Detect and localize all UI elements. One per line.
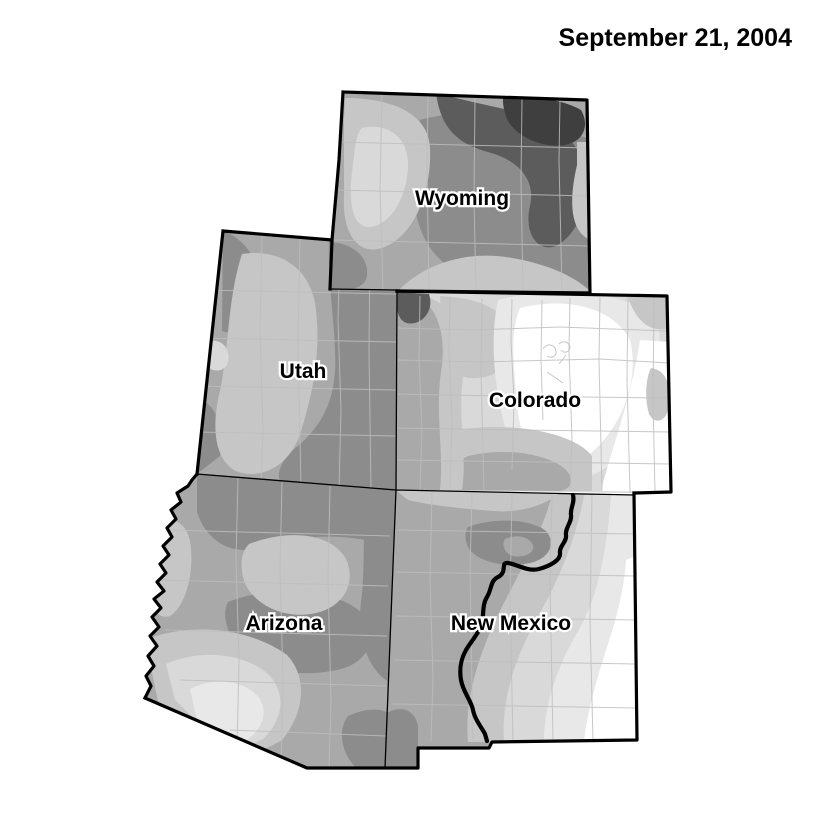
map-canvas: September 21, 2004 Wyoming Utah Colorado…: [0, 0, 816, 816]
map-figure: September 21, 2004 Wyoming Utah Colorado…: [0, 0, 816, 816]
state-label-arizona: Arizona: [245, 612, 322, 635]
state-label-colorado: Colorado: [489, 389, 581, 412]
state-label-wyoming: Wyoming: [415, 187, 509, 210]
map-date-title: September 21, 2004: [559, 24, 793, 52]
state-label-new-mexico: New Mexico: [451, 612, 571, 635]
state-label-utah: Utah: [280, 360, 327, 383]
